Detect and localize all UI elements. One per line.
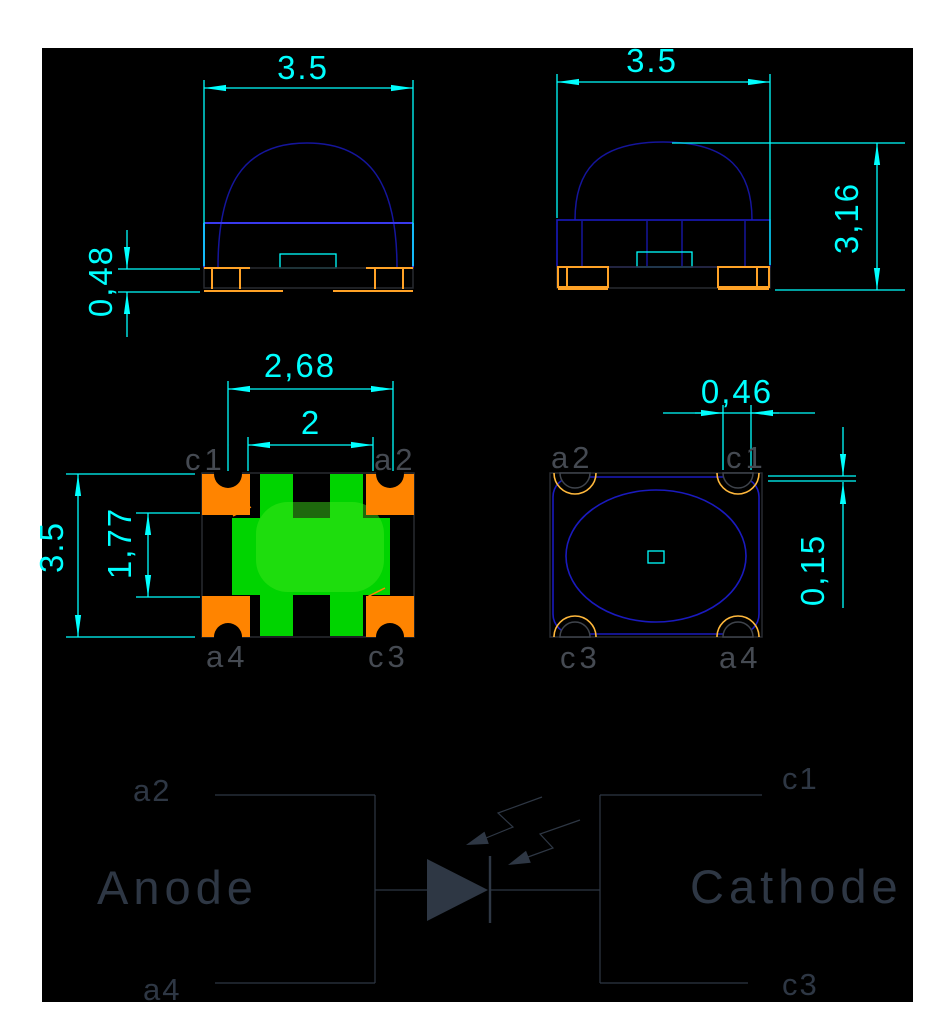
- dim-edge-text: 0,15: [794, 534, 831, 606]
- pin-label-a2: a2: [551, 440, 593, 475]
- dim-center-height-text: 1,77: [101, 507, 138, 579]
- die-highlight: [256, 502, 384, 592]
- dim-base-text: 0,48: [82, 245, 119, 317]
- cad-page: 3.5 0,48 3.5: [0, 0, 950, 1009]
- dim-width-text: 3.5: [277, 49, 329, 86]
- pin-label-a2: a2: [374, 442, 416, 477]
- pin-label-c1: c1: [726, 440, 767, 475]
- pin-label-c1: c1: [782, 761, 819, 796]
- pin-label-a4: a4: [143, 972, 181, 1007]
- cad-drawing: 3.5 0,48 3.5: [0, 0, 950, 1009]
- dim-inner-text: 2: [301, 404, 321, 441]
- dim-width-text: 3.5: [626, 42, 678, 79]
- dim-body-height-text: 3.5: [33, 521, 70, 573]
- dim-height-text: 3,16: [828, 182, 865, 254]
- pin-label-c3: c3: [782, 967, 819, 1002]
- anode-label: Anode: [97, 861, 258, 914]
- dim-pad-span-text: 2,68: [264, 347, 336, 384]
- pin-label-a4: a4: [719, 640, 761, 675]
- pin-label-a4: a4: [206, 639, 248, 674]
- pin-label-a2: a2: [133, 773, 171, 808]
- cathode-label: Cathode: [690, 860, 903, 913]
- dim-notch-text: 0,46: [701, 373, 773, 410]
- pin-label-c3: c3: [560, 640, 601, 675]
- drawing-canvas: [42, 48, 913, 1002]
- pin-label-c3: c3: [368, 639, 409, 674]
- pin-label-c1: c1: [185, 442, 226, 477]
